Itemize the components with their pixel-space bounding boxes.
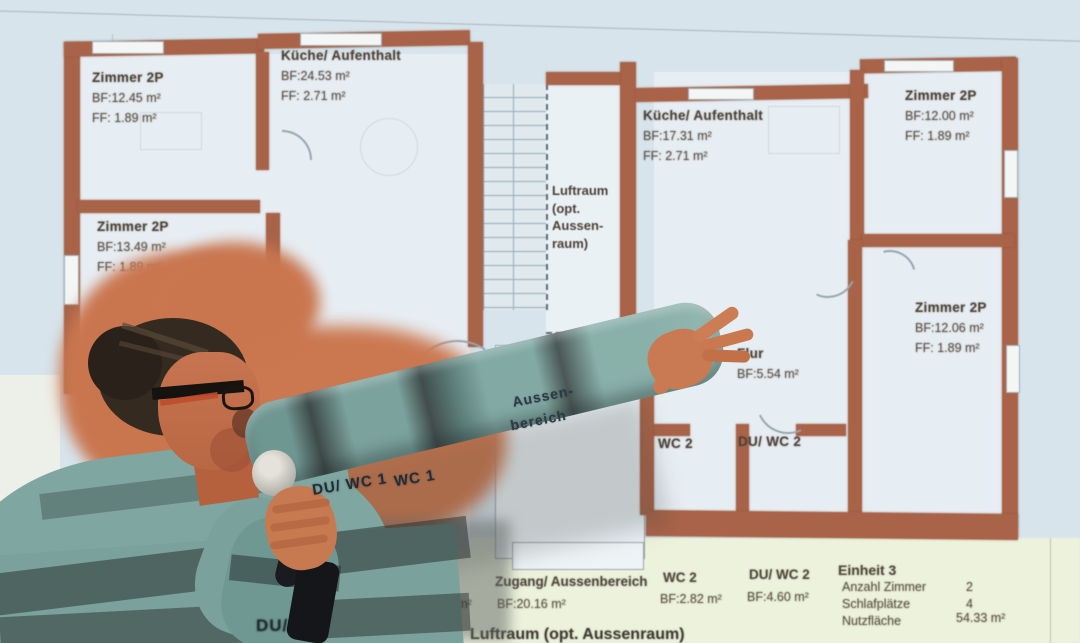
room-bf: BF:12.00 m² (905, 106, 977, 126)
room-name: Zimmer 2P (915, 298, 987, 318)
finger (702, 349, 750, 363)
room-label-kueche-right: Küche/ Aufenthalt BF:17.31 m² FF: 2.71 m… (643, 106, 763, 166)
wall-segment (78, 200, 260, 213)
einheit-row-value: 4 (966, 597, 973, 611)
label-line: (opt. (552, 200, 608, 218)
room-bf: BF:5.54 m² (737, 364, 799, 384)
room-name: Zimmer 2P (905, 86, 977, 106)
photo-of-presentation: Zimmer 2P BF:12.45 m² FF: 1.89 m² Küche/… (0, 0, 1080, 643)
room-bf: BF:17.31 m² (643, 126, 763, 146)
room-ff: FF: 2.71 m² (281, 86, 401, 106)
room-ff: FF: 1.89 m² (905, 126, 977, 146)
room-label-du-wc2: DU/ WC 2 (738, 432, 801, 452)
staircase-center-line (513, 84, 514, 310)
room-name: DU/ WC 2 (738, 432, 801, 452)
room-label-kueche-left: Küche/ Aufenthalt BF:24.53 m² FF: 2.71 m… (281, 46, 401, 106)
room-name: Zimmer 2P (92, 68, 164, 88)
window-marker (884, 60, 954, 72)
wall-segment (862, 234, 1014, 247)
room-bf: BF:24.53 m² (281, 66, 401, 86)
screen-crease-line (0, 10, 1080, 43)
furniture-outline (768, 106, 840, 154)
room-ff: FF: 1.89 m² (915, 338, 987, 358)
label-line: raum) (552, 235, 608, 253)
room-ff: FF: 2.71 m² (643, 146, 763, 166)
window-marker (1006, 345, 1020, 393)
legend-item-du-wc2-area: BF:4.60 m² (747, 590, 809, 604)
furniture-outline (360, 118, 418, 176)
wall-segment (468, 42, 483, 347)
room-ff: FF: 1.89 m² (92, 108, 164, 128)
window-marker (300, 33, 382, 46)
einheit-title: Einheit 3 (838, 562, 896, 578)
staircase (483, 84, 547, 310)
room-label-zimmer-top-left: Zimmer 2P BF:12.45 m² FF: 1.89 m² (92, 68, 164, 128)
room-label-flur-right: Flur BF:5.54 m² (737, 344, 799, 384)
room-name: Zimmer 2P (97, 217, 169, 237)
window-marker (688, 88, 754, 100)
einheit-row-label: Nutzfläche (842, 614, 901, 628)
wall-segment (1002, 58, 1018, 538)
wall-segment (546, 72, 620, 85)
einheit-row-label: Anzahl Zimmer (842, 580, 926, 594)
legend-item-wc2-area: BF:2.82 m² (660, 592, 722, 606)
legend-item-du-wc2-name: DU/ WC 2 (749, 567, 810, 582)
room-name: Küche/ Aufenthalt (643, 106, 763, 126)
window-marker (64, 255, 79, 305)
einheit-row-label: Schlafplätze (842, 597, 910, 611)
wall-segment (646, 510, 1018, 540)
wall-segment (620, 62, 636, 334)
label-line: Aussen- (552, 217, 608, 235)
room-bf: BF:12.06 m² (915, 318, 987, 338)
paper-edge-line (1050, 538, 1051, 643)
room-name: Küche/ Aufenthalt (281, 46, 401, 66)
einheit-row-value: 2 (966, 580, 973, 594)
wall-segment (850, 70, 864, 242)
room-label-zimmer-right: Zimmer 2P BF:12.06 m² FF: 1.89 m² (915, 298, 987, 358)
label-line: Luftraum (552, 182, 608, 200)
legend-item-wc2-name: WC 2 (663, 570, 697, 585)
dashed-boundary (546, 84, 548, 310)
room-label-zimmer-top-right: Zimmer 2P BF:12.00 m² FF: 1.89 m² (905, 86, 977, 146)
legend-item-zugang-name: Zugang/ Aussenbereich (495, 574, 648, 589)
room-label-luftraum: Luftraum (opt. Aussen- raum) (552, 182, 608, 252)
du-fragment-projected: DU/ (256, 616, 288, 636)
window-marker (1004, 150, 1018, 198)
window-marker (92, 41, 164, 54)
einheit-row-value: 54.33 m² (956, 611, 1005, 625)
room-label-wc2: WC 2 (658, 434, 693, 454)
room-name: WC 2 (658, 434, 693, 454)
room-bf: BF:12.45 m² (92, 88, 164, 108)
